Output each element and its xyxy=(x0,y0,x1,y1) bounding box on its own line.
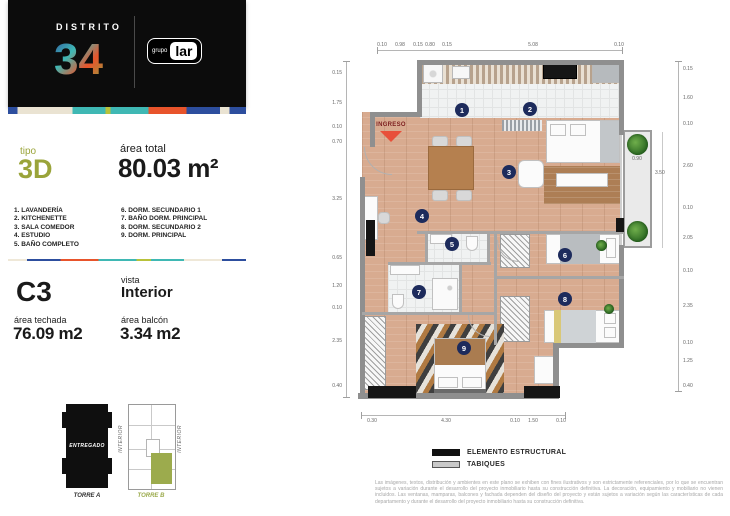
structural-column xyxy=(616,218,624,232)
tick xyxy=(361,412,362,419)
partitions-label: TABIQUES xyxy=(467,461,505,468)
dim-label: 1.50 xyxy=(524,418,542,424)
torre-b-caption: TORRE B xyxy=(126,493,176,499)
torre-a-status: ENTREGADO xyxy=(69,443,105,449)
disclaimer-text: Las imágenes, textos, distribución y amb… xyxy=(375,480,723,505)
room-number-badge: 1 xyxy=(455,103,469,117)
torre-b-footprint xyxy=(128,404,176,490)
floorplan-sheet: DISTRITO 34 grupo lar tipo 3D área total… xyxy=(0,0,730,516)
structural-column xyxy=(524,386,560,398)
dim-label: 0.10 xyxy=(683,121,693,127)
wall xyxy=(619,245,624,345)
dim-label: 0.10 xyxy=(322,305,342,311)
dim-label: 0.10 xyxy=(552,418,570,424)
dim-label: 0.15 xyxy=(683,66,693,72)
partition xyxy=(497,276,624,279)
svg-text:34: 34 xyxy=(54,35,103,84)
cooktop-icon xyxy=(543,64,577,79)
brand-number-logo: 34 xyxy=(54,30,124,86)
torre-a-tab xyxy=(108,458,112,474)
room-legend-col1: 1. LAVANDERÍA 2. KITCHENETTE 3. SALA COM… xyxy=(14,207,79,249)
dim-label: 0.10 xyxy=(683,340,693,346)
dim-label: 1.75 xyxy=(322,100,342,106)
partition xyxy=(494,231,497,345)
section-divider-stripe xyxy=(8,259,246,261)
armchair xyxy=(518,160,544,188)
dim-label: 0.15 xyxy=(322,70,342,76)
dim-line-top xyxy=(378,50,623,51)
tick xyxy=(622,47,623,54)
void-area xyxy=(556,346,622,398)
room-number-badge: 6 xyxy=(558,248,572,262)
partition xyxy=(388,262,491,265)
bed-blanket xyxy=(560,310,596,343)
dim-label: 2.35 xyxy=(322,338,342,344)
wall xyxy=(370,112,422,117)
tick xyxy=(675,61,682,62)
dim-label: 0.30 xyxy=(363,418,381,424)
list-item: 8. DORM. SECUNDARIO 2 xyxy=(121,224,207,232)
logo-divider xyxy=(134,16,135,88)
area-techada-value: 76.09 m2 xyxy=(13,324,82,344)
torre-a-tab xyxy=(108,412,112,428)
room-number-badge: 3 xyxy=(502,165,516,179)
dresser xyxy=(534,356,554,384)
lar-label: lar xyxy=(170,42,197,60)
dim-label: 2.05 xyxy=(683,235,693,241)
partition xyxy=(417,231,624,234)
dim-label: 2.60 xyxy=(683,163,693,169)
pillow xyxy=(570,124,586,136)
interior-label-left: INTERIOR xyxy=(118,425,124,453)
tick xyxy=(343,61,350,62)
dining-table xyxy=(428,146,474,190)
list-item: 2. KITCHENETTE xyxy=(14,215,79,223)
structural-swatch xyxy=(432,449,460,456)
room-number-badge: 9 xyxy=(457,341,471,355)
room-number-badge: 8 xyxy=(558,292,572,306)
grupo-lar-logo: grupo lar xyxy=(147,38,202,64)
dim-line-bottom xyxy=(362,415,566,416)
room-number-badge: 4 xyxy=(415,209,429,223)
plant-icon xyxy=(627,221,648,242)
dim-label: 0.15 xyxy=(438,42,456,48)
wardrobe xyxy=(364,316,386,390)
wall xyxy=(417,60,422,115)
pillow xyxy=(606,238,616,258)
tick xyxy=(377,47,378,54)
brand-color-stripe xyxy=(8,107,246,114)
dim-label: 0.10 xyxy=(610,42,628,48)
dim-label: 3.25 xyxy=(322,196,342,202)
brand-header: DISTRITO 34 grupo lar xyxy=(8,0,246,107)
pillow xyxy=(604,313,616,324)
dim-label: 0.65 xyxy=(322,255,342,261)
bench xyxy=(556,173,608,187)
wall xyxy=(370,112,375,147)
desk-chair xyxy=(378,212,390,224)
interior-label-right: INTERIOR xyxy=(177,425,183,453)
area-balcon-value: 3.34 m2 xyxy=(120,324,180,344)
room-number-badge: 2 xyxy=(523,102,537,116)
ingreso-arrow-icon xyxy=(380,131,402,142)
torre-a-caption: TORRE A xyxy=(60,493,114,499)
dim-label: 2.35 xyxy=(683,303,693,309)
dim-label: 0.98 xyxy=(391,42,409,48)
dim-line-right xyxy=(678,62,679,392)
room-legend-col2: 6. DORM. SECUNDARIO 1 7. BAÑO DORM. PRIN… xyxy=(121,207,207,241)
pillow xyxy=(550,124,566,136)
toilet-icon xyxy=(466,236,478,251)
list-item: 7. BAÑO DORM. PRINCIPAL xyxy=(121,215,207,223)
dim-label: 3.50 xyxy=(655,170,665,176)
torre-b-line xyxy=(129,425,175,426)
dim-label: 0.40 xyxy=(683,383,693,389)
ingreso-label: INGRESO xyxy=(368,122,414,128)
dim-label: 0.40 xyxy=(322,383,342,389)
dim-label: 4.30 xyxy=(437,418,455,424)
pillow xyxy=(438,377,458,388)
partition xyxy=(459,265,462,315)
wall xyxy=(360,177,365,398)
pillow xyxy=(462,377,482,388)
dim-line-left xyxy=(346,62,347,398)
room-number-badge: 7 xyxy=(412,285,426,299)
dim-label: 0.10 xyxy=(683,205,693,211)
torre-a-tab xyxy=(62,458,66,474)
tick xyxy=(343,397,350,398)
dim-line-balcony xyxy=(662,132,663,248)
plant-icon xyxy=(596,240,607,251)
structural-column xyxy=(366,220,375,256)
wall xyxy=(553,343,624,348)
torre-a-footprint: ENTREGADO xyxy=(66,404,108,488)
plant-icon xyxy=(627,134,648,155)
list-item: 5. BAÑO COMPLETO xyxy=(14,241,79,249)
dim-label: 1.25 xyxy=(683,358,693,364)
wall xyxy=(619,60,624,135)
kitchen-mat xyxy=(502,120,542,131)
highlighted-unit xyxy=(151,453,172,484)
closet xyxy=(500,296,530,342)
area-total-value: 80.03 m² xyxy=(118,153,218,184)
partition xyxy=(487,231,490,265)
vista-value: Interior xyxy=(121,284,173,301)
torre-a-tab xyxy=(62,412,66,428)
fridge-icon xyxy=(592,62,620,83)
dim-label: 0.80 xyxy=(421,42,439,48)
unit-code: C3 xyxy=(16,276,52,308)
chair-icon xyxy=(456,190,472,201)
vanity xyxy=(390,265,420,275)
bed-runner xyxy=(554,310,561,343)
shower xyxy=(432,278,458,310)
partitions-swatch xyxy=(432,461,460,468)
wall xyxy=(417,60,624,65)
structural-column xyxy=(368,386,416,398)
dim-label: 0.10 xyxy=(322,124,342,130)
washer-icon xyxy=(423,63,443,83)
sink-icon xyxy=(452,66,470,79)
throw-blanket xyxy=(600,121,619,162)
toilet-icon xyxy=(392,294,404,309)
dim-label: 1.20 xyxy=(322,283,342,289)
grupo-label: grupo xyxy=(152,48,167,54)
dim-label: 0.70 xyxy=(322,139,342,145)
plant-icon xyxy=(604,304,614,314)
dim-label: 0.10 xyxy=(373,42,391,48)
room-number-badge: 5 xyxy=(445,237,459,251)
dim-label: 0.10 xyxy=(506,418,524,424)
chair-icon xyxy=(432,190,448,201)
partition xyxy=(425,231,428,265)
list-item: 1. LAVANDERÍA xyxy=(14,207,79,215)
dim-label: 1.60 xyxy=(683,95,693,101)
tipo-value: 3D xyxy=(18,154,53,185)
pillow xyxy=(604,327,616,338)
dim-label: 0.90 xyxy=(628,156,646,162)
dim-label: 5.08 xyxy=(524,42,542,48)
tick xyxy=(675,391,682,392)
structural-label: ELEMENTO ESTRUCTURAL xyxy=(467,449,566,456)
list-item: 3. SALA COMEDOR xyxy=(14,224,79,232)
list-item: 9. DORM. PRINCIPAL xyxy=(121,232,207,240)
dim-label: 0.10 xyxy=(683,268,693,274)
list-item: 4. ESTUDIO xyxy=(14,232,79,240)
